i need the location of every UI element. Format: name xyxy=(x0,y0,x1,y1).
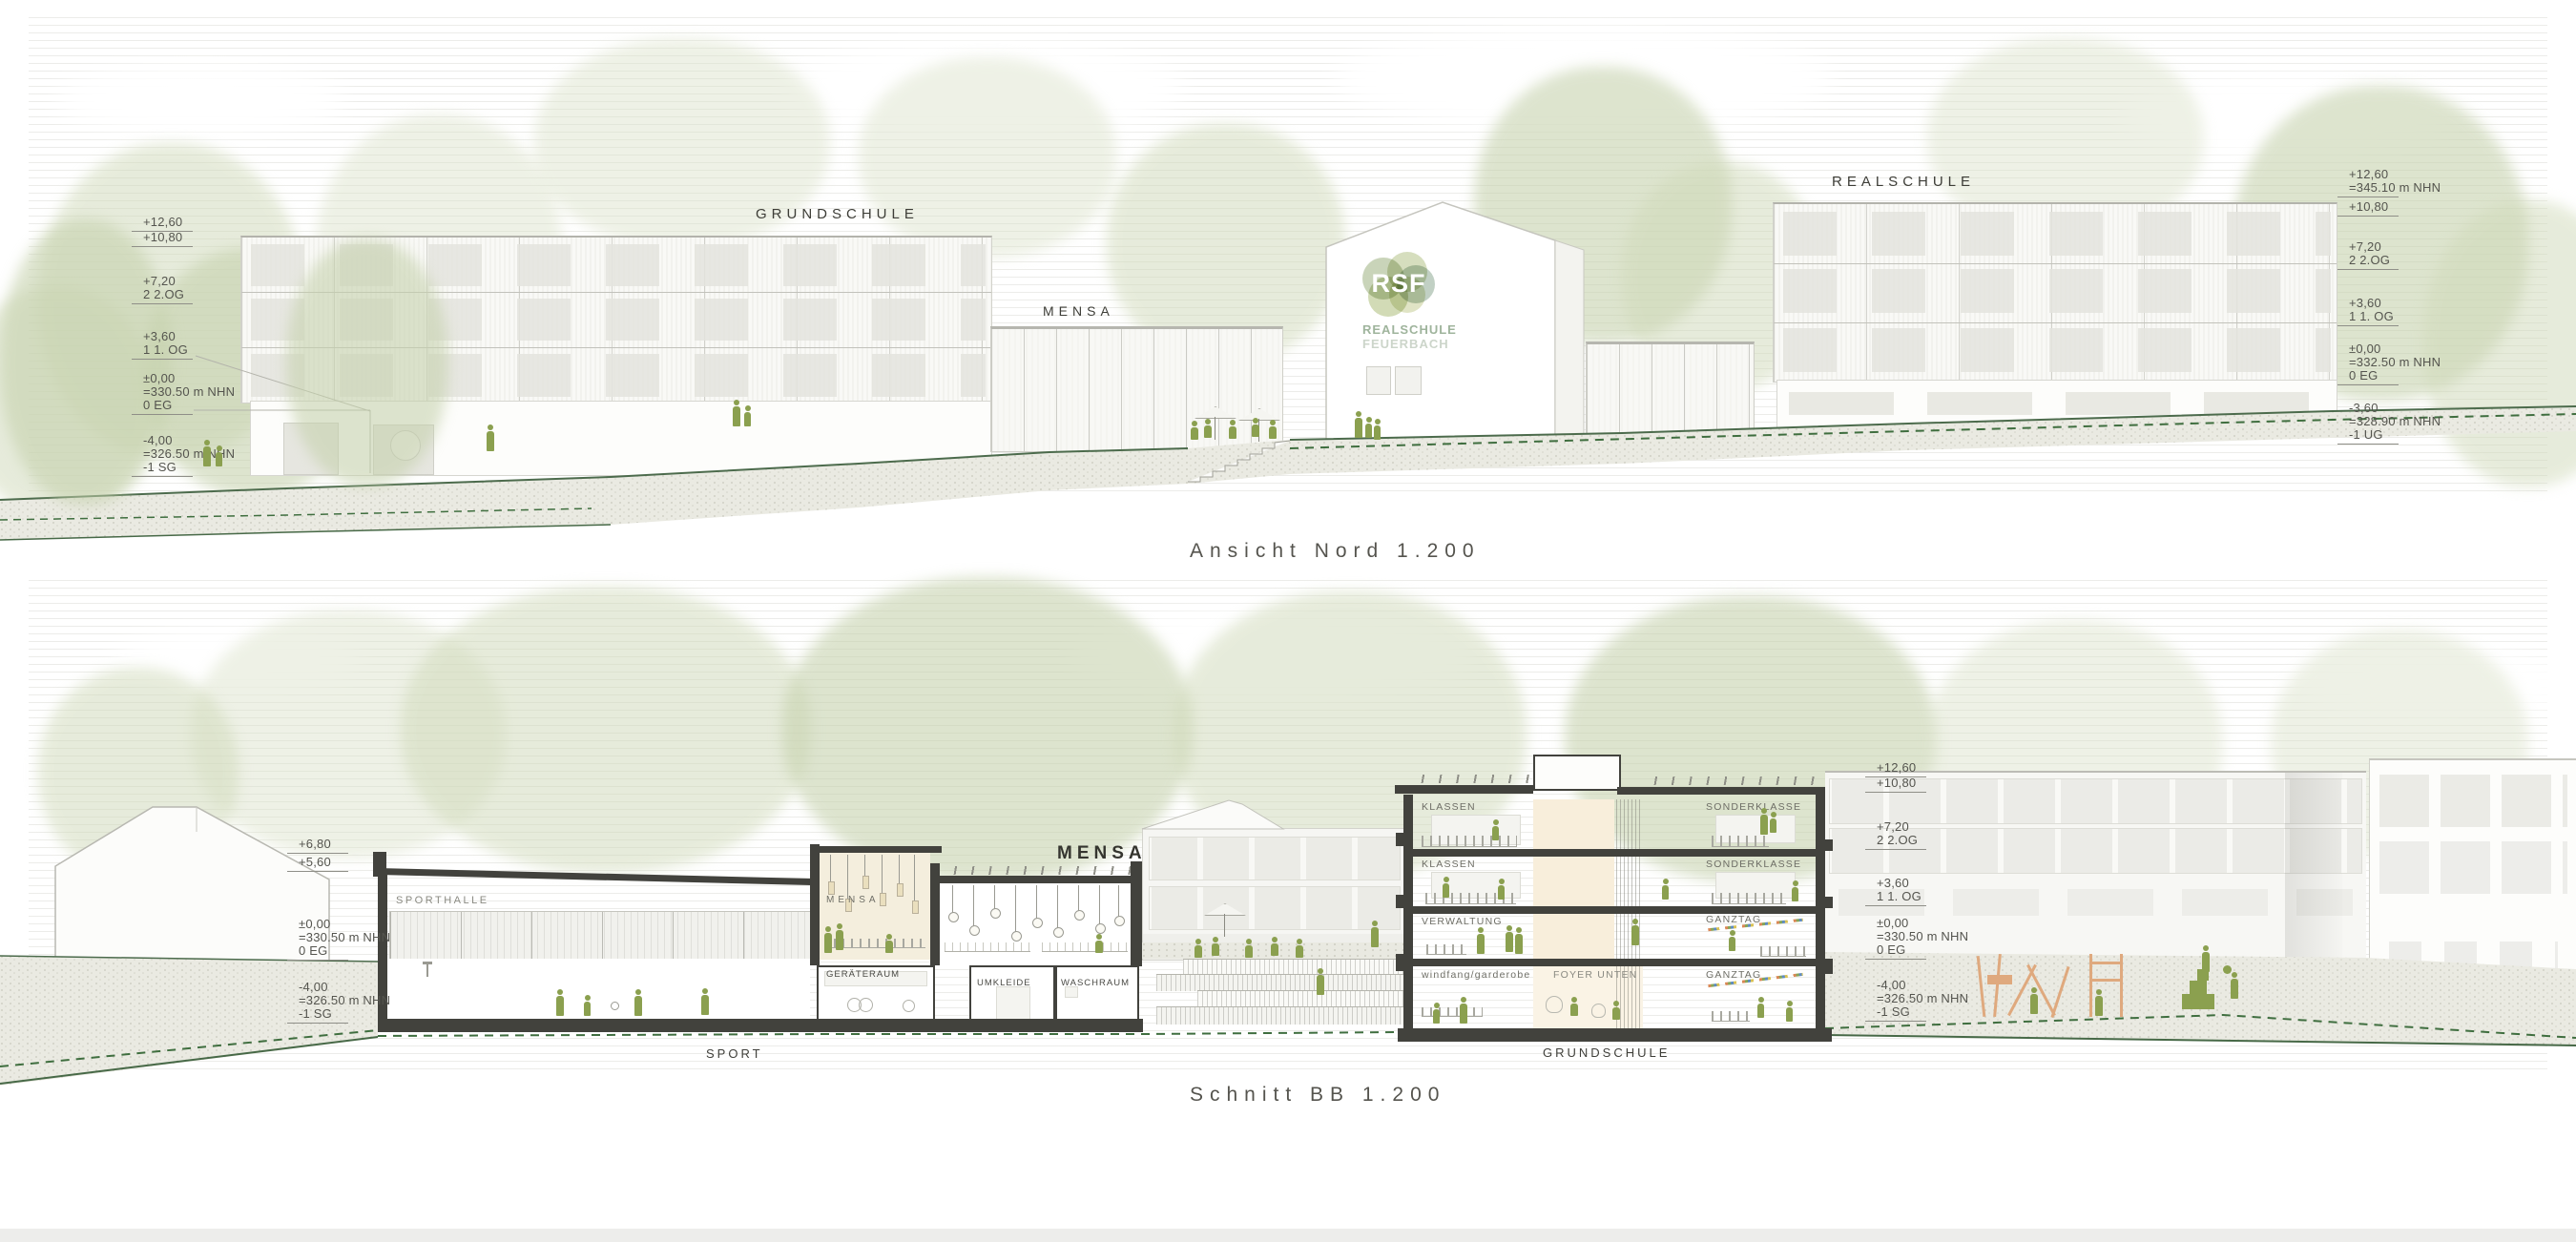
level-rule xyxy=(1865,1021,1926,1022)
pendant-light xyxy=(882,855,883,895)
person-figure xyxy=(1498,885,1505,900)
person-figure xyxy=(1506,932,1513,952)
person-figure xyxy=(584,1002,591,1016)
person-figure xyxy=(1770,818,1776,833)
person-figure xyxy=(824,933,832,953)
section-slab xyxy=(1413,906,1816,914)
amphitheater-terrace xyxy=(1197,990,1405,1007)
person-figure xyxy=(1460,1004,1467,1024)
foyer-bay xyxy=(1533,857,1614,906)
locker-panel xyxy=(996,986,1030,1021)
label-sporthalle: SPORTHALLE xyxy=(396,895,489,906)
person-figure xyxy=(1631,925,1639,945)
mensa-hall-roof-slab xyxy=(940,876,1142,883)
person-figure xyxy=(885,941,893,953)
label-windfang: windfang/garderobe xyxy=(1422,969,1530,981)
person-figure xyxy=(1515,934,1523,954)
level-text: -1 SG xyxy=(1865,1005,1968,1019)
label-sonderklasse-1: SONDERKLASSE xyxy=(1706,801,1801,813)
label-sport: SPORT xyxy=(706,1046,763,1061)
label-geraeteraum: GERÄTERAUM xyxy=(826,969,900,980)
person-figure xyxy=(1443,883,1449,898)
level-text: 0 EG xyxy=(1865,943,1968,957)
level-text: 2 2.OG xyxy=(1865,834,1926,847)
table-row xyxy=(1042,942,1128,952)
person-figure xyxy=(1757,1004,1764,1018)
pendant-lamp xyxy=(1118,885,1119,918)
table-row xyxy=(945,942,1030,952)
chair-row xyxy=(1712,893,1786,904)
level-rule xyxy=(287,853,348,854)
pendant-light xyxy=(899,855,900,885)
person-figure xyxy=(1296,945,1303,958)
person-figure xyxy=(2095,996,2103,1016)
person-figure xyxy=(1317,975,1324,995)
gym-ball xyxy=(859,998,873,1012)
level-marker-group: +3,60 1 1. OG xyxy=(1865,877,1926,906)
person-figure xyxy=(836,930,843,950)
mensa-roof-slab xyxy=(810,846,942,853)
label-sonderklasse-2: SONDERKLASSE xyxy=(1706,859,1801,870)
sporthalle-floor-slab xyxy=(378,1019,821,1032)
person-figure xyxy=(556,996,564,1016)
pendant-lamp xyxy=(1036,885,1037,920)
chair-row xyxy=(1712,1011,1750,1022)
label-waschraum: WASCHRAUM xyxy=(1061,978,1130,988)
sporthalle-interior xyxy=(387,959,810,1019)
level-marker-group: +6,80 xyxy=(287,838,348,854)
bench xyxy=(1422,1007,1483,1017)
label-klassen-2: KLASSEN xyxy=(1422,859,1476,870)
pendant-lamp xyxy=(952,885,953,914)
roof-bulkhead xyxy=(1533,755,1621,791)
level-text: -4,00 xyxy=(287,981,390,994)
umbrella-pole xyxy=(1224,914,1225,937)
label-verwaltung: VERWALTUNG xyxy=(1422,916,1503,927)
person-figure xyxy=(634,996,642,1016)
sill-nub xyxy=(1825,897,1833,908)
person-figure xyxy=(2231,979,2238,999)
basement-floor-slab xyxy=(810,1019,1143,1032)
solar-panels xyxy=(946,866,1133,875)
sporthalle-clerestory xyxy=(389,911,812,961)
level-rule xyxy=(287,1023,348,1024)
sill-nub xyxy=(1825,839,1833,851)
section-right-wall xyxy=(1816,795,1825,1030)
level-marker-group: -4,00 =326.50 m NHN -1 SG xyxy=(1865,979,1968,1022)
person-figure xyxy=(701,995,709,1015)
level-text: +10,80 xyxy=(1865,776,1926,790)
pendant-light xyxy=(847,855,848,900)
level-text: +7,20 xyxy=(1865,820,1926,834)
person-figure xyxy=(1570,1004,1578,1016)
plant xyxy=(1591,1004,1606,1018)
person-figure xyxy=(1760,815,1768,835)
person-figure xyxy=(1245,945,1253,958)
section-slab xyxy=(1413,959,1816,966)
section-roof-slab-left xyxy=(1395,785,1533,794)
level-text: +3,60 xyxy=(1865,877,1926,890)
level-marker-group: ±0,00 =330.50 m NHN 0 EG xyxy=(1865,917,1968,960)
sill-nub xyxy=(1396,833,1403,846)
person-figure xyxy=(1612,1007,1620,1020)
level-text: =326.50 m NHN xyxy=(1865,992,1968,1005)
stair-shaft-wall xyxy=(1616,799,1643,1028)
climbing-frame-rung xyxy=(2089,962,2123,964)
mensa-left-wall xyxy=(810,844,820,965)
level-rule xyxy=(287,960,348,961)
climbing-frame-rung xyxy=(2089,979,2123,982)
sill-nub xyxy=(1396,895,1403,908)
pendant-light xyxy=(864,855,865,878)
level-text: =330.50 m NHN xyxy=(287,931,390,944)
level-text: 1 1. OG xyxy=(1865,890,1926,903)
foyer-bay xyxy=(1533,914,1614,959)
person-figure xyxy=(1433,1009,1440,1024)
pendant-lamp xyxy=(994,885,995,910)
climbing-frame-bar xyxy=(1987,975,2012,984)
solar-panels xyxy=(1647,776,1818,785)
level-rule xyxy=(1865,792,1926,793)
level-marker-group: -4,00 =326.50 m NHN -1 SG xyxy=(287,981,390,1024)
sheet-bottom-strip xyxy=(0,1229,2576,1242)
gym-ball xyxy=(903,1000,915,1012)
level-marker-group: +5,60 xyxy=(287,856,348,872)
person-figure xyxy=(1271,943,1278,956)
level-marker-group: +10,80 xyxy=(1865,776,1926,793)
level-rule xyxy=(1865,849,1926,850)
architectural-drawing-sheet: RSF REALSCHULE FEUERBACH xyxy=(0,0,2576,1242)
play-sculpture xyxy=(2190,981,2207,994)
person-figure xyxy=(1729,937,1735,951)
level-marker-group: +7,20 2 2.OG xyxy=(1865,820,1926,850)
level-rule xyxy=(1865,905,1926,906)
pendant-lamp xyxy=(1015,885,1016,933)
toy-shelf xyxy=(1760,946,1806,957)
pendant-light xyxy=(830,855,831,883)
pendant-lamp xyxy=(1099,885,1100,925)
level-text: ±0,00 xyxy=(287,918,390,931)
person-figure xyxy=(2030,994,2038,1014)
ball xyxy=(611,1002,619,1010)
chair-row xyxy=(1712,836,1769,847)
foyer-bay xyxy=(1533,799,1614,849)
section-slab xyxy=(1413,849,1816,857)
label-grundschule-schnitt: GRUNDSCHULE xyxy=(1543,1045,1670,1060)
mensa-partition-wall xyxy=(930,863,940,965)
label-klassen-1: KLASSEN xyxy=(1422,801,1476,813)
mensa-hall-right-wall xyxy=(1131,861,1142,966)
person-figure xyxy=(1212,943,1219,956)
label-mensa-small: MENSA xyxy=(826,895,880,905)
person-figure xyxy=(1662,885,1669,900)
person-figure xyxy=(1371,927,1379,947)
waschraum-room xyxy=(1055,965,1139,1023)
level-marker-group: ±0,00 =330.50 m NHN 0 EG xyxy=(287,918,390,961)
amphitheater-terrace xyxy=(1156,974,1405,991)
play-sculpture xyxy=(2182,994,2214,1009)
level-text: +5,60 xyxy=(287,856,348,869)
umkleide-room xyxy=(969,965,1055,1023)
person-figure xyxy=(1477,934,1485,954)
solar-panels xyxy=(1414,775,1530,783)
section-bottom-slab xyxy=(1398,1028,1832,1042)
pendant-lamp xyxy=(1078,885,1079,912)
level-rule xyxy=(1865,959,1926,960)
level-text: -1 SG xyxy=(287,1007,390,1021)
ball xyxy=(2223,965,2232,974)
level-text: +6,80 xyxy=(287,838,348,851)
section-roof-slab-right xyxy=(1617,787,1825,795)
level-text: =326.50 m NHN xyxy=(287,994,390,1007)
caption-schnitt-bb: Schnitt BB 1.200 xyxy=(1190,1084,1445,1107)
pendant-light xyxy=(914,855,915,902)
label-mensa-large: MENSA xyxy=(1057,843,1147,864)
desk xyxy=(1426,944,1466,955)
label-umkleide: UMKLEIDE xyxy=(977,978,1031,988)
person-figure xyxy=(1786,1007,1793,1022)
pendant-lamp xyxy=(973,885,974,927)
level-text: 0 EG xyxy=(287,944,390,958)
sill-nub xyxy=(1825,959,1833,974)
chair-row xyxy=(1422,836,1517,847)
person-figure xyxy=(1095,941,1103,953)
person-figure xyxy=(1492,826,1499,840)
level-rule xyxy=(287,871,348,872)
person-figure xyxy=(2202,952,2210,972)
basketball-pole xyxy=(426,962,428,977)
label-foyer-unten: FOYER UNTEN xyxy=(1553,969,1637,981)
level-text: -4,00 xyxy=(1865,979,1968,992)
level-text: =330.50 m NHN xyxy=(1865,930,1968,943)
terrain-schnitt xyxy=(0,0,2576,1242)
amphitheater-terrace xyxy=(1183,959,1405,975)
pendant-lamp xyxy=(1057,885,1058,929)
plant xyxy=(1546,996,1563,1013)
level-text: +12,60 xyxy=(1865,761,1926,775)
section-left-wall xyxy=(1403,795,1413,1030)
level-text: ±0,00 xyxy=(1865,917,1968,930)
person-figure xyxy=(1792,887,1798,901)
sill-nub xyxy=(1396,954,1403,971)
person-figure xyxy=(1195,945,1202,958)
amphitheater-terrace xyxy=(1156,1006,1405,1025)
